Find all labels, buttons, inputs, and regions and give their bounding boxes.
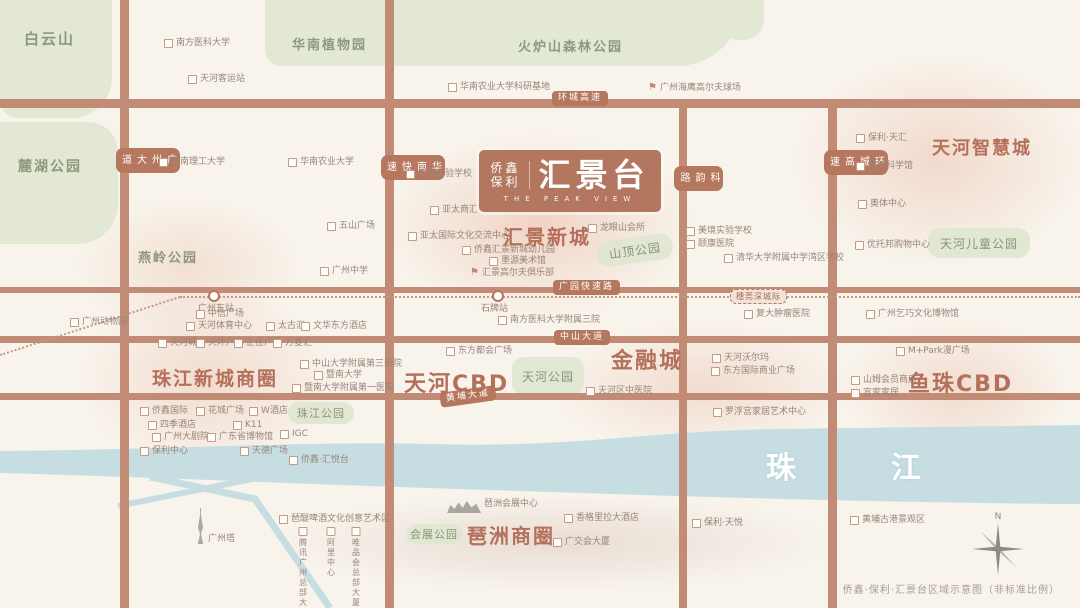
- road-name-badge: 环城高速: [552, 91, 608, 106]
- building-icon: [152, 433, 161, 442]
- compass-star-icon: [972, 523, 1024, 575]
- road-vertical: [120, 0, 129, 608]
- poi: 广东省博物馆: [207, 433, 273, 442]
- district-label: 鱼珠CBD: [908, 366, 1013, 398]
- station-icon: [188, 75, 197, 84]
- poi: 侨鑫汇景新城幼儿园: [462, 246, 555, 255]
- park-area: [265, 0, 743, 66]
- poi-label: 南方医科大学: [176, 39, 230, 48]
- poi: 山姆会员商店: [851, 376, 917, 385]
- poi-label: 天河沃尔玛: [724, 354, 769, 363]
- poi-label: 汇景实验学校: [418, 170, 472, 179]
- poi: 暨南大学: [314, 371, 362, 380]
- convention-center-icon: [447, 500, 481, 513]
- road-horizontal: [0, 287, 1080, 293]
- poi-label: 广东省博物馆: [219, 433, 273, 442]
- poi-label: 花城广场: [208, 407, 244, 416]
- poi: 唯品会 总部大厦: [352, 527, 361, 608]
- poi: 南方医科大学: [164, 39, 230, 48]
- poi: M+Park漫广场: [896, 347, 970, 356]
- poi: 汇景实验学校: [406, 170, 472, 179]
- poi: 侨鑫国际: [140, 407, 188, 416]
- building-icon: [196, 310, 205, 319]
- school-icon: [159, 158, 168, 167]
- poi: 奥体中心: [858, 200, 906, 209]
- poi: 美境实验学校: [686, 227, 752, 236]
- park-label: 天河公园: [512, 357, 584, 395]
- school-icon: [406, 170, 415, 179]
- poi: ⚑汇景高尔夫俱乐部: [470, 268, 554, 278]
- poi: 广州中学: [320, 267, 368, 276]
- poi-label: 美境实验学校: [698, 227, 752, 236]
- building-icon: [279, 515, 288, 524]
- building-icon: [851, 389, 860, 398]
- poi: 天河城: [158, 339, 197, 348]
- poi: 保利·天汇: [856, 134, 907, 143]
- canal: [118, 477, 262, 506]
- poi: 宜家家居: [851, 389, 899, 398]
- river-name: 珠: [766, 443, 798, 487]
- poi: 广州乞巧文化博物馆: [866, 310, 959, 319]
- building-icon: [711, 367, 720, 376]
- poi: 万菱汇: [273, 339, 312, 348]
- district-label: 金融城: [611, 343, 683, 375]
- building-icon: [588, 224, 597, 233]
- poi-label: 天河客运站: [200, 75, 245, 84]
- building-icon: [430, 206, 439, 215]
- compass-rose: N: [971, 512, 1025, 579]
- hospital-icon: [498, 316, 507, 325]
- poi: 华南农业大学科研基地: [448, 83, 550, 92]
- building-icon: [186, 322, 195, 331]
- poi: W酒店: [249, 407, 288, 416]
- road-name-badge: 科韵路: [674, 166, 723, 191]
- park-label: 火炉山森林公园: [518, 36, 623, 55]
- poi-label: 汇景高尔夫俱乐部: [482, 269, 554, 278]
- park-label: 白云山: [24, 28, 75, 49]
- poi: 天德广场: [240, 447, 288, 456]
- poi-label: 五山广场: [339, 222, 375, 231]
- poi-label: 亚太商汇: [442, 206, 478, 215]
- poi: 亚太国际文化交流中心: [408, 232, 510, 241]
- poi-label: 广州乞巧文化博物馆: [878, 310, 959, 319]
- poi-label: 广州中学: [332, 267, 368, 276]
- poi: 腾讯广州 总部大楼: [299, 527, 308, 608]
- poi-label: W酒店: [261, 407, 288, 416]
- poi-label: 广州海鹰高尔夫球场: [660, 84, 741, 93]
- road-name-badge: 广园快速路: [553, 280, 620, 295]
- hospital-icon: [586, 387, 595, 396]
- poi-label: 宜家家居: [863, 389, 899, 398]
- golf-flag-icon: ⚑: [648, 83, 657, 93]
- poi: 香格里拉大酒店: [564, 514, 639, 523]
- poi: 广交会大厦: [553, 538, 610, 547]
- building-icon: [301, 322, 310, 331]
- poi-label: 航天科学馆: [868, 162, 913, 171]
- poi-label: 琶醍啤酒文化创意艺术区: [291, 515, 390, 524]
- poi-label: 华南农业大学科研基地: [460, 83, 550, 92]
- building-icon: [140, 407, 149, 416]
- poi-label: 天河区中医院: [598, 387, 652, 396]
- building-icon: [207, 433, 216, 442]
- poi: 广州塔: [196, 508, 235, 544]
- poi: 琶醍啤酒文化创意艺术区: [279, 515, 390, 524]
- poi-label: 广州动物园: [82, 318, 127, 327]
- building-icon: [266, 322, 275, 331]
- poi-label: 天河体育中心: [198, 322, 252, 331]
- poi-label: 广州大剧院: [164, 433, 209, 442]
- building-icon: [289, 456, 298, 465]
- poi-label: 华南农业大学: [300, 158, 354, 167]
- school-icon: [314, 371, 323, 380]
- poi-label: 东方国际商业广场: [723, 367, 795, 376]
- poi: 天河客运站: [188, 75, 245, 84]
- poi-label: 清华大学附属中学湾区学校: [736, 254, 844, 263]
- building-icon: [352, 527, 361, 536]
- building-icon: [273, 339, 282, 348]
- poi: 天河区中医院: [586, 387, 652, 396]
- poi: ⚑广州海鹰高尔夫球场: [648, 83, 741, 93]
- golf-flag-icon: ⚑: [470, 268, 479, 278]
- museum-icon: [866, 310, 875, 319]
- poi-label: 天河城: [170, 339, 197, 348]
- poi: K11: [233, 421, 262, 430]
- district-label: 天河CBD: [404, 366, 509, 398]
- building-icon: [196, 407, 205, 416]
- poi: 亚太商汇: [430, 206, 478, 215]
- building-icon: [712, 354, 721, 363]
- park-label: 天河儿童公园: [928, 228, 1030, 258]
- building-icon: [553, 538, 562, 547]
- building-icon: [408, 232, 417, 241]
- poi: 广州大剧院: [152, 433, 209, 442]
- poi: 太古汇: [266, 322, 305, 331]
- poi: 复大肿瘤医院: [744, 310, 810, 319]
- brand-top: 侨鑫: [490, 161, 520, 175]
- park-area: [718, 0, 764, 40]
- poi: 天河体育中心: [186, 322, 252, 331]
- poi-label: 侨鑫国际: [152, 407, 188, 416]
- poi-label: 保利·天汇: [868, 134, 907, 143]
- building-icon: [855, 241, 864, 250]
- poi: 五山广场: [327, 222, 375, 231]
- building-icon: [327, 222, 336, 231]
- building-icon: [240, 447, 249, 456]
- building-icon: [196, 339, 205, 348]
- park-label: 华南植物园: [292, 34, 367, 53]
- poi: 东方国际商业广场: [711, 367, 795, 376]
- metro-station-label: 石牌站: [481, 301, 508, 314]
- poi-label: 中山大学附属第三医院: [312, 360, 402, 369]
- building-icon: [851, 376, 860, 385]
- district-label: 天河智慧城: [932, 134, 1032, 160]
- poi-label: 暨南大学: [326, 371, 362, 380]
- poi: 花城广场: [196, 407, 244, 416]
- poi: 天河沃尔玛: [712, 354, 769, 363]
- poi-label: 腾讯广州 总部大楼: [299, 538, 308, 608]
- building-icon: [299, 527, 308, 536]
- poi-label: 琶洲会展中心: [484, 500, 538, 509]
- building-icon: [446, 347, 455, 356]
- compass-north-label: N: [971, 512, 1025, 522]
- poi-label: 墨源美术馆: [501, 257, 546, 266]
- road-name-badge: 中山大道: [554, 330, 610, 345]
- building-icon: [234, 339, 243, 348]
- poi: 琶洲会展中心: [447, 500, 538, 513]
- poi-label: 亚太国际文化交流中心: [420, 232, 510, 241]
- park-label: 会展公园: [406, 524, 462, 544]
- poi: 黄埔古港景观区: [850, 516, 925, 525]
- park-area: [0, 122, 118, 244]
- park-label: 燕岭公园: [138, 247, 198, 266]
- poi-label: 龙眼山会所: [600, 224, 645, 233]
- poi-label: 暨南大学附属第一医院: [304, 384, 394, 393]
- poi-label: 广州塔: [208, 535, 235, 544]
- school-icon: [686, 227, 695, 236]
- building-icon: [327, 527, 336, 536]
- building-icon: [856, 134, 865, 143]
- hospital-icon: [300, 360, 309, 369]
- building-icon: [148, 421, 157, 430]
- project-name: 汇景台: [539, 159, 650, 191]
- poi: 广州动物园: [70, 318, 127, 327]
- poi: 华南理工大学: [159, 158, 225, 167]
- poi: 中山大学附属第三医院: [300, 360, 402, 369]
- canton-tower-icon: [196, 508, 205, 544]
- poi-label: 阿里 中心: [327, 538, 336, 578]
- poi-label: 保利·天悦: [704, 519, 743, 528]
- hospital-icon: [292, 384, 301, 393]
- school-icon: [448, 83, 457, 92]
- poi: 墨源美术馆: [489, 257, 546, 266]
- building-icon: [564, 514, 573, 523]
- poi-label: 天德广场: [252, 447, 288, 456]
- district-label: 珠江新城商圈: [152, 364, 278, 391]
- building-icon: [249, 407, 258, 416]
- building-icon: [158, 339, 167, 348]
- poi: 航天科学馆: [856, 162, 913, 171]
- school-icon: [164, 39, 173, 48]
- poi-label: M+Park漫广场: [908, 347, 970, 356]
- poi-label: 罗浮宫家居艺术中心: [725, 408, 806, 417]
- brand-name: 侨鑫 保利: [490, 161, 529, 190]
- poi: 侨鑫·汇悦台: [289, 456, 349, 465]
- poi: 华南农业大学: [288, 158, 354, 167]
- poi-label: 奥体中心: [870, 200, 906, 209]
- poi-label: 保利中心: [152, 447, 188, 456]
- museum-icon: [489, 257, 498, 266]
- poi-label: 复大肿瘤医院: [756, 310, 810, 319]
- project-logo: 侨鑫 保利 汇景台 THE PEAK VIEW: [479, 150, 661, 212]
- building-icon: [713, 408, 722, 417]
- poi-label: 侨鑫汇景新城幼儿园: [474, 246, 555, 255]
- poi: 中信广场: [196, 310, 244, 319]
- poi: 保利·天悦: [692, 519, 743, 528]
- poi-label: IGC: [292, 430, 308, 439]
- poi-label: 万菱汇: [285, 339, 312, 348]
- poi: 颐康医院: [686, 240, 734, 249]
- poi: 优托邦购物中心: [855, 241, 930, 250]
- building-icon: [850, 516, 859, 525]
- school-icon: [724, 254, 733, 263]
- building-icon: [140, 447, 149, 456]
- poi-label: 优托邦购物中心: [867, 241, 930, 250]
- poi: 东方都会广场: [446, 347, 512, 356]
- poi: 南方医科大学附属三院: [498, 316, 600, 325]
- poi-label: 唯品会 总部大厦: [352, 538, 361, 608]
- building-icon: [280, 430, 289, 439]
- poi-label: 广交会大厦: [565, 538, 610, 547]
- region-map: 山顶公园天河儿童公园珠江公园天河公园会展公园 广州大道华南快速科韵路环城高速环城…: [0, 0, 1080, 608]
- poi-label: K11: [245, 421, 262, 430]
- park-label: 麓湖公园: [18, 156, 82, 176]
- poi: 罗浮宫家居艺术中心: [713, 408, 806, 417]
- poi-label: 华南理工大学: [171, 158, 225, 167]
- school-icon: [288, 158, 297, 167]
- zoo-icon: [70, 318, 79, 327]
- museum-icon: [856, 162, 865, 171]
- poi-label: 侨鑫·汇悦台: [301, 456, 349, 465]
- building-icon: [233, 421, 242, 430]
- poi: 保利中心: [140, 447, 188, 456]
- building-icon: [896, 347, 905, 356]
- poi-label: 香格里拉大酒店: [576, 514, 639, 523]
- poi: 龙眼山会所: [588, 224, 645, 233]
- poi-label: 东方都会广场: [458, 347, 512, 356]
- poi: 阿里 中心: [327, 527, 336, 578]
- poi: IGC: [280, 430, 308, 439]
- poi: 文华东方酒店: [301, 322, 367, 331]
- poi: 清华大学附属中学湾区学校: [724, 254, 844, 263]
- river-name: 江: [891, 443, 923, 487]
- poi: 暨南大学附属第一医院: [292, 384, 394, 393]
- brand-bottom: 保利: [490, 175, 520, 189]
- road-vertical: [828, 99, 837, 608]
- poi-label: 山姆会员商店: [863, 376, 917, 385]
- metro-line-badge: 穗莞深城际: [730, 289, 787, 304]
- poi-label: 颐康医院: [698, 240, 734, 249]
- poi: 四季酒店: [148, 421, 196, 430]
- school-icon: [320, 267, 329, 276]
- poi-label: 中信广场: [208, 310, 244, 319]
- building-icon: [692, 519, 701, 528]
- hospital-icon: [744, 310, 753, 319]
- map-caption: 侨鑫·保利·汇景台区域示意图（非标准比例）: [843, 581, 1060, 596]
- poi-label: 南方医科大学附属三院: [510, 316, 600, 325]
- road-horizontal: [0, 99, 1080, 108]
- hospital-icon: [686, 240, 695, 249]
- project-name-en: THE PEAK VIEW: [504, 195, 637, 203]
- district-label: 琶洲商圈: [467, 520, 555, 549]
- poi-label: 四季酒店: [160, 421, 196, 430]
- poi-label: 黄埔古港景观区: [862, 516, 925, 525]
- building-icon: [858, 200, 867, 209]
- metro-line: [180, 296, 1080, 298]
- poi-label: 文华东方酒店: [313, 322, 367, 331]
- school-icon: [462, 246, 471, 255]
- park-label: 珠江公园: [288, 402, 354, 424]
